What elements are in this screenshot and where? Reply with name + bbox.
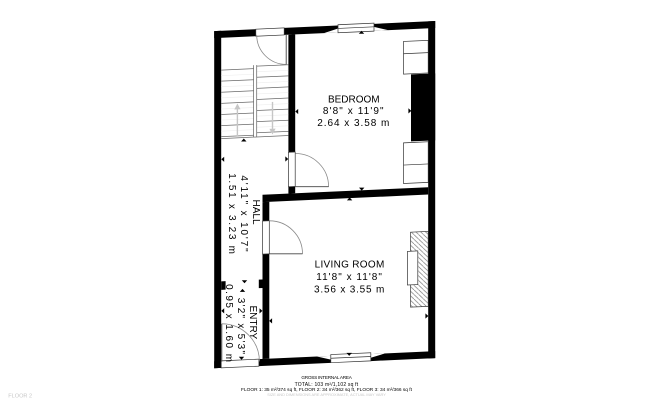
svg-text:LIVING ROOM: LIVING ROOM — [315, 259, 385, 270]
svg-text:SIZE AND DIMENSIONS ARE APPROX: SIZE AND DIMENSIONS ARE APPROXIMATE, ACT… — [267, 392, 386, 397]
svg-text:TOTAL: 103 m²/1,102 sq ft: TOTAL: 103 m²/1,102 sq ft — [295, 382, 359, 388]
svg-text:GROSS INTERNAL AREA: GROSS INTERNAL AREA — [301, 375, 352, 380]
svg-text:HALL: HALL — [250, 199, 261, 224]
svg-text:ENTRY: ENTRY — [247, 305, 258, 339]
svg-text:3.56 x 3.55 m: 3.56 x 3.55 m — [314, 284, 385, 295]
svg-text:11'8" x 11'8": 11'8" x 11'8" — [316, 272, 383, 283]
svg-text:FLOOR 2: FLOOR 2 — [8, 393, 32, 399]
svg-text:2.64 x 3.58 m: 2.64 x 3.58 m — [317, 118, 390, 129]
svg-text:8'8" x 11'9": 8'8" x 11'9" — [323, 106, 385, 117]
svg-text:0.95 x 1.60 m: 0.95 x 1.60 m — [223, 284, 234, 363]
svg-text:4'11" x 10'7": 4'11" x 10'7" — [238, 175, 249, 253]
svg-text:3'2" x 5'3": 3'2" x 5'3" — [235, 298, 246, 355]
svg-text:BEDROOM: BEDROOM — [328, 94, 380, 105]
svg-text:1.51 x 3.23 m: 1.51 x 3.23 m — [226, 173, 237, 255]
